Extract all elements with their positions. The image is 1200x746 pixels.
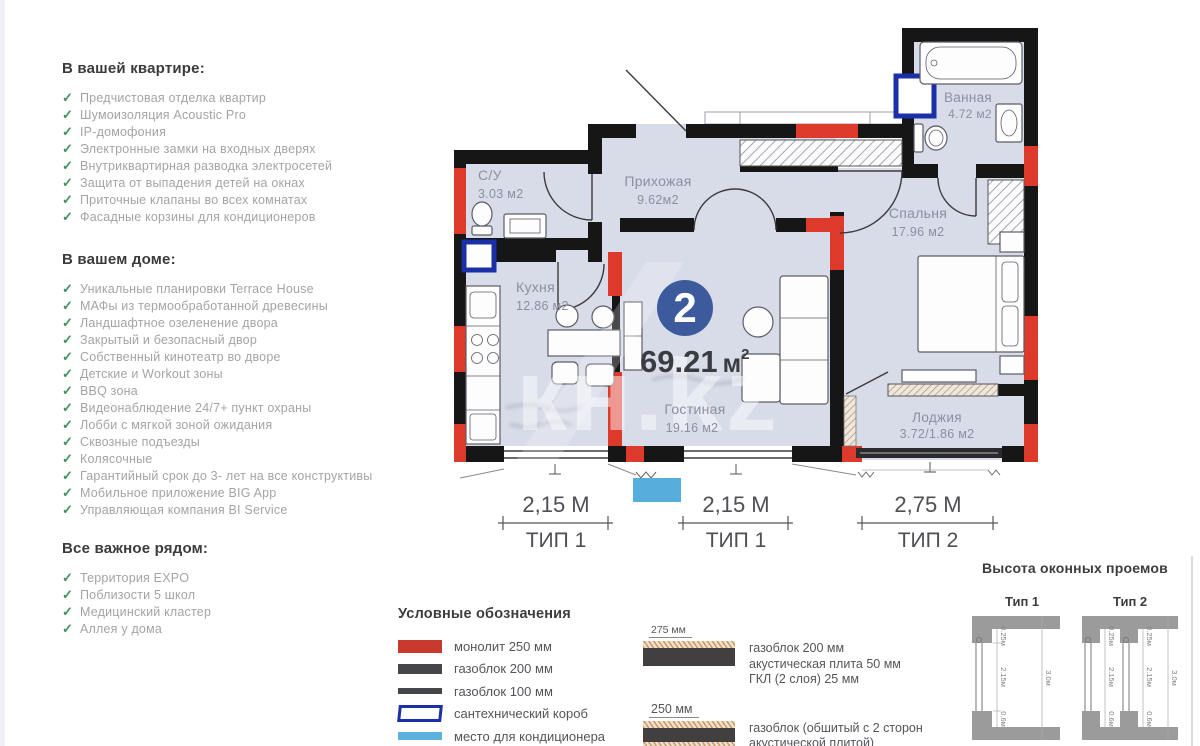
check-icon: ✓ — [62, 383, 80, 399]
apartment-features-list: ✓Предчистовая отделка квартир ✓Шумоизоля… — [62, 89, 434, 225]
legend-item: место для кондиционера — [398, 725, 648, 746]
left-edge-strip — [0, 0, 5, 746]
svg-text:ТИП 1: ТИП 1 — [526, 529, 587, 552]
right-divider-line — [1191, 556, 1193, 746]
plumbing-box-swatch-icon — [397, 705, 443, 722]
feature-item: ✓Управляющая компания BI Service — [62, 501, 434, 518]
svg-text:9.62м2: 9.62м2 — [637, 193, 679, 207]
svg-text:12.86 м2: 12.86 м2 — [516, 299, 569, 313]
kitchen-sink — [470, 292, 496, 318]
svg-text:2.15м: 2.15м — [999, 667, 1008, 687]
area-badge: 2 — [657, 280, 713, 336]
svg-text:0.25м: 0.25м — [1145, 626, 1154, 646]
ac-place — [633, 478, 681, 502]
feature-item: ✓Лобби с мягкой зоной ожидания — [62, 416, 434, 433]
nightstand — [1000, 232, 1024, 252]
svg-text:0.6м: 0.6м — [999, 711, 1008, 727]
check-icon: ✓ — [62, 434, 80, 450]
feature-item: ✓Поблизости 5 школ — [62, 586, 434, 603]
check-icon: ✓ — [62, 366, 80, 382]
dimension-1: 2,15 М ТИП 1 — [498, 492, 613, 552]
plumbing-box-su — [464, 242, 494, 270]
wall-type-1-swatch-icon — [643, 641, 735, 666]
ac-place-swatch-icon — [398, 732, 442, 740]
dimension-3: 2,75 М ТИП 2 — [857, 492, 998, 552]
svg-text:3.72/1.86 м2: 3.72/1.86 м2 — [900, 427, 975, 441]
feature-item: ✓Приточные клапаны во всех комнатах — [62, 191, 434, 208]
svg-text:2,15 М: 2,15 М — [522, 492, 589, 517]
check-icon: ✓ — [62, 417, 80, 433]
hallway-wardrobe — [740, 140, 902, 166]
coffee-table — [743, 307, 773, 337]
legend-item: сантехнический короб — [398, 703, 648, 726]
svg-text:17.96 м2: 17.96 м2 — [892, 225, 945, 239]
check-icon: ✓ — [62, 192, 80, 208]
feature-item: ✓BBQ зона — [62, 382, 434, 399]
wall-type-2-swatch-icon — [643, 721, 735, 746]
svg-text:ТИП 1: ТИП 1 — [706, 529, 767, 552]
section-title-nearby: Все важное рядом: — [62, 540, 434, 557]
svg-text:2.15м: 2.15м — [1145, 667, 1154, 687]
svg-text:2,75 М: 2,75 М — [894, 492, 961, 517]
wall-types: 275 мм газоблок 200 мм акустическая плит… — [643, 620, 973, 746]
kitchen-counter — [466, 286, 500, 444]
feature-item: ✓Защита от выпадения детей на окнах — [62, 174, 434, 191]
svg-text:4.72 м2: 4.72 м2 — [948, 107, 992, 121]
check-icon: ✓ — [62, 502, 80, 518]
svg-text:2,15 М: 2,15 М — [702, 492, 769, 517]
svg-text:0.25м: 0.25м — [999, 626, 1008, 646]
feature-item: ✓Видеонаблюдение 24/7+ пункт охраны — [62, 399, 434, 416]
gasblock200-swatch-icon — [398, 664, 442, 674]
window-type2-diagram: 0.25м 2.15м 0.6м 0.25м 2.15м 0.6м 3.0м — [1080, 614, 1180, 745]
feature-item: ✓Уникальные планировки Terrace House — [62, 280, 434, 297]
feature-item: ✓Гарантийный срок до 3- лет на все конст… — [62, 467, 434, 484]
monolith-swatch-icon — [398, 640, 442, 653]
feature-item: ✓Электронные замки на входных дверях — [62, 140, 434, 157]
svg-text:19.16 м2: 19.16 м2 — [666, 421, 719, 435]
kitchen-appliance — [470, 414, 496, 440]
svg-text:3.0м: 3.0м — [1170, 670, 1179, 686]
feature-item: ✓МАФы из термообработанной древесины — [62, 297, 434, 314]
check-icon: ✓ — [62, 281, 80, 297]
window-type1-diagram: 0.25м 2.15м 0.6м 3.0м — [970, 614, 1065, 745]
check-icon: ✓ — [62, 175, 80, 191]
wall-type-1: 275 мм газоблок 200 мм акустическая плит… — [643, 620, 973, 688]
check-icon: ✓ — [62, 332, 80, 348]
bedroom-bench — [902, 370, 976, 382]
loggia-wall — [888, 384, 998, 396]
feature-item: ✓Медицинский кластер — [62, 603, 434, 620]
section-title-building: В вашем доме: — [62, 251, 434, 268]
svg-text:2.15м: 2.15м — [1107, 667, 1116, 687]
legend-item: монолит 250 мм — [398, 635, 648, 658]
feature-item: ✓Сквозные подъезды — [62, 433, 434, 450]
svg-text:0.6м: 0.6м — [1107, 711, 1116, 727]
bed — [918, 256, 1024, 352]
check-icon: ✓ — [62, 451, 80, 467]
check-icon: ✓ — [62, 141, 80, 157]
check-icon: ✓ — [62, 468, 80, 484]
feature-item: ✓Аллея у дома — [62, 620, 434, 637]
features-sidebar: В вашей квартире: ✓Предчистовая отделка … — [62, 60, 434, 637]
feature-item: ✓Ландшафтное озеленение двора — [62, 314, 434, 331]
room-count-badge: 2 — [673, 284, 696, 331]
gasblock100-swatch-icon — [398, 688, 442, 694]
feature-item: ✓Мобильное приложение BIG App — [62, 484, 434, 501]
wall-type-2-size: 250 мм — [649, 702, 699, 718]
wall-type-2: 250 мм газоблок (обшитый с 2 сторон акус… — [643, 700, 973, 746]
feature-item: ✓Закрытый и безопасный двор — [62, 331, 434, 348]
exterior-outline-top — [705, 112, 905, 124]
feature-item: ✓Фасадные корзины для кондиционеров — [62, 208, 434, 225]
room-label-hallway: Прихожая — [624, 173, 691, 189]
wall-type-1-size: 275 мм — [649, 624, 692, 638]
room-label-kitchen: Кухня — [516, 279, 555, 295]
window-type2-label: Тип 2 — [1113, 594, 1147, 609]
window-heights-title: Высота оконных проемов — [982, 560, 1168, 576]
nearby-features-list: ✓Территория EXPO ✓Поблизости 5 школ ✓Мед… — [62, 569, 434, 637]
feature-item: ✓Предчистовая отделка квартир — [62, 89, 434, 106]
total-area: 69.21м2 — [640, 344, 749, 379]
check-icon: ✓ — [62, 158, 80, 174]
window-type1-label: Тип 1 — [1005, 594, 1039, 609]
check-icon: ✓ — [62, 621, 80, 637]
feature-item: ✓Внутриквартирная разводка электросетей — [62, 157, 434, 174]
svg-text:3.0м: 3.0м — [1044, 670, 1053, 686]
feature-item: ✓Детские и Workout зоны — [62, 365, 434, 382]
legend: Условные обозначения монолит 250 мм газо… — [398, 606, 648, 746]
room-label-su: С/У — [478, 167, 502, 183]
su-sink — [504, 214, 546, 238]
feature-item: ✓Колясочные — [62, 450, 434, 467]
check-icon: ✓ — [62, 349, 80, 365]
building-features-list: ✓Уникальные планировки Terrace House ✓МА… — [62, 280, 434, 518]
svg-text:0.25м: 0.25м — [1107, 626, 1116, 646]
room-label-living: Гостиная — [664, 401, 725, 417]
check-icon: ✓ — [62, 90, 80, 106]
check-icon: ✓ — [62, 604, 80, 620]
room-label-bathroom: Ванная — [944, 90, 992, 105]
section-title-apartment: В вашей квартире: — [62, 60, 434, 77]
dimension-2: 2,15 М ТИП 1 — [678, 492, 793, 552]
room-label-bedroom: Спальня — [889, 205, 947, 221]
svg-text:0.6м: 0.6м — [1145, 711, 1154, 727]
floor-plan: кн.kz С/У 3.03 м2 Прихожая 9.62м2 Ванная… — [440, 20, 1040, 565]
svg-text:ТИП 2: ТИП 2 — [898, 529, 959, 552]
check-icon: ✓ — [62, 209, 80, 225]
svg-text:3.03 м2: 3.03 м2 — [478, 187, 523, 201]
check-icon: ✓ — [62, 315, 80, 331]
su-toilet — [472, 202, 492, 235]
legend-title: Условные обозначения — [398, 606, 648, 622]
bathroom-sink — [996, 104, 1022, 142]
check-icon: ✓ — [62, 107, 80, 123]
room-label-loggia: Лоджия — [912, 410, 962, 425]
check-icon: ✓ — [62, 587, 80, 603]
legend-item: газоблок 200 мм — [398, 658, 648, 681]
legend-item: газоблок 100 мм — [398, 680, 648, 703]
entry-door — [626, 70, 686, 131]
check-icon: ✓ — [62, 570, 80, 586]
nightstand — [1000, 356, 1024, 374]
check-icon: ✓ — [62, 485, 80, 501]
bathroom-toilet — [914, 124, 947, 152]
bathtub — [920, 42, 1022, 84]
check-icon: ✓ — [62, 298, 80, 314]
page: В вашей квартире: ✓Предчистовая отделка … — [0, 0, 1200, 746]
check-icon: ✓ — [62, 400, 80, 416]
loggia-side-wall — [844, 396, 856, 446]
feature-item: ✓IP-домофония — [62, 123, 434, 140]
feature-item: ✓Шумоизоляция Acoustic Pro — [62, 106, 434, 123]
feature-item: ✓Территория EXPO — [62, 569, 434, 586]
dimension-lines: 2,15 М ТИП 1 2,15 М ТИП 1 2,75 М ТИП 2 — [498, 492, 998, 552]
check-icon: ✓ — [62, 124, 80, 140]
feature-item: ✓Собственный кинотеатр во дворе — [62, 348, 434, 365]
